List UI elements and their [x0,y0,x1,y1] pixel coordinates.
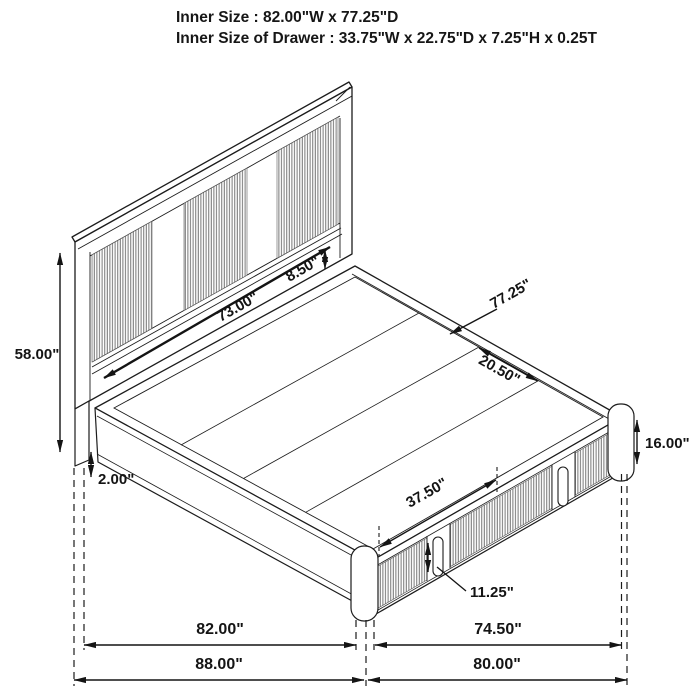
dim-label-88: 88.00" [195,656,243,673]
drawer-handle-right [558,467,568,506]
dimension-diagram: Inner Size : 82.00"W x 77.25"D Inner Siz… [0,0,700,700]
dim-label-2: 2.00" [98,471,134,488]
bed-line-drawing: 58.00" 73.00" 8.50" 77.25" 20.50" 16.00"… [0,0,700,700]
right-corner-post [608,404,634,481]
dim-label-58: 58.00" [15,346,60,363]
dim-label-77-25: 77.25" [487,276,534,313]
dim-label-80: 80.00" [473,656,521,673]
front-corner-post [351,546,378,621]
dim-arrow-77-25 [450,309,497,334]
dim-label-16: 16.00" [645,435,690,452]
dim-label-11-25: 11.25" [470,584,514,601]
dim-label-74-50: 74.50" [474,621,522,638]
headboard-left-leg [75,401,89,466]
dim-label-82: 82.00" [196,621,244,638]
